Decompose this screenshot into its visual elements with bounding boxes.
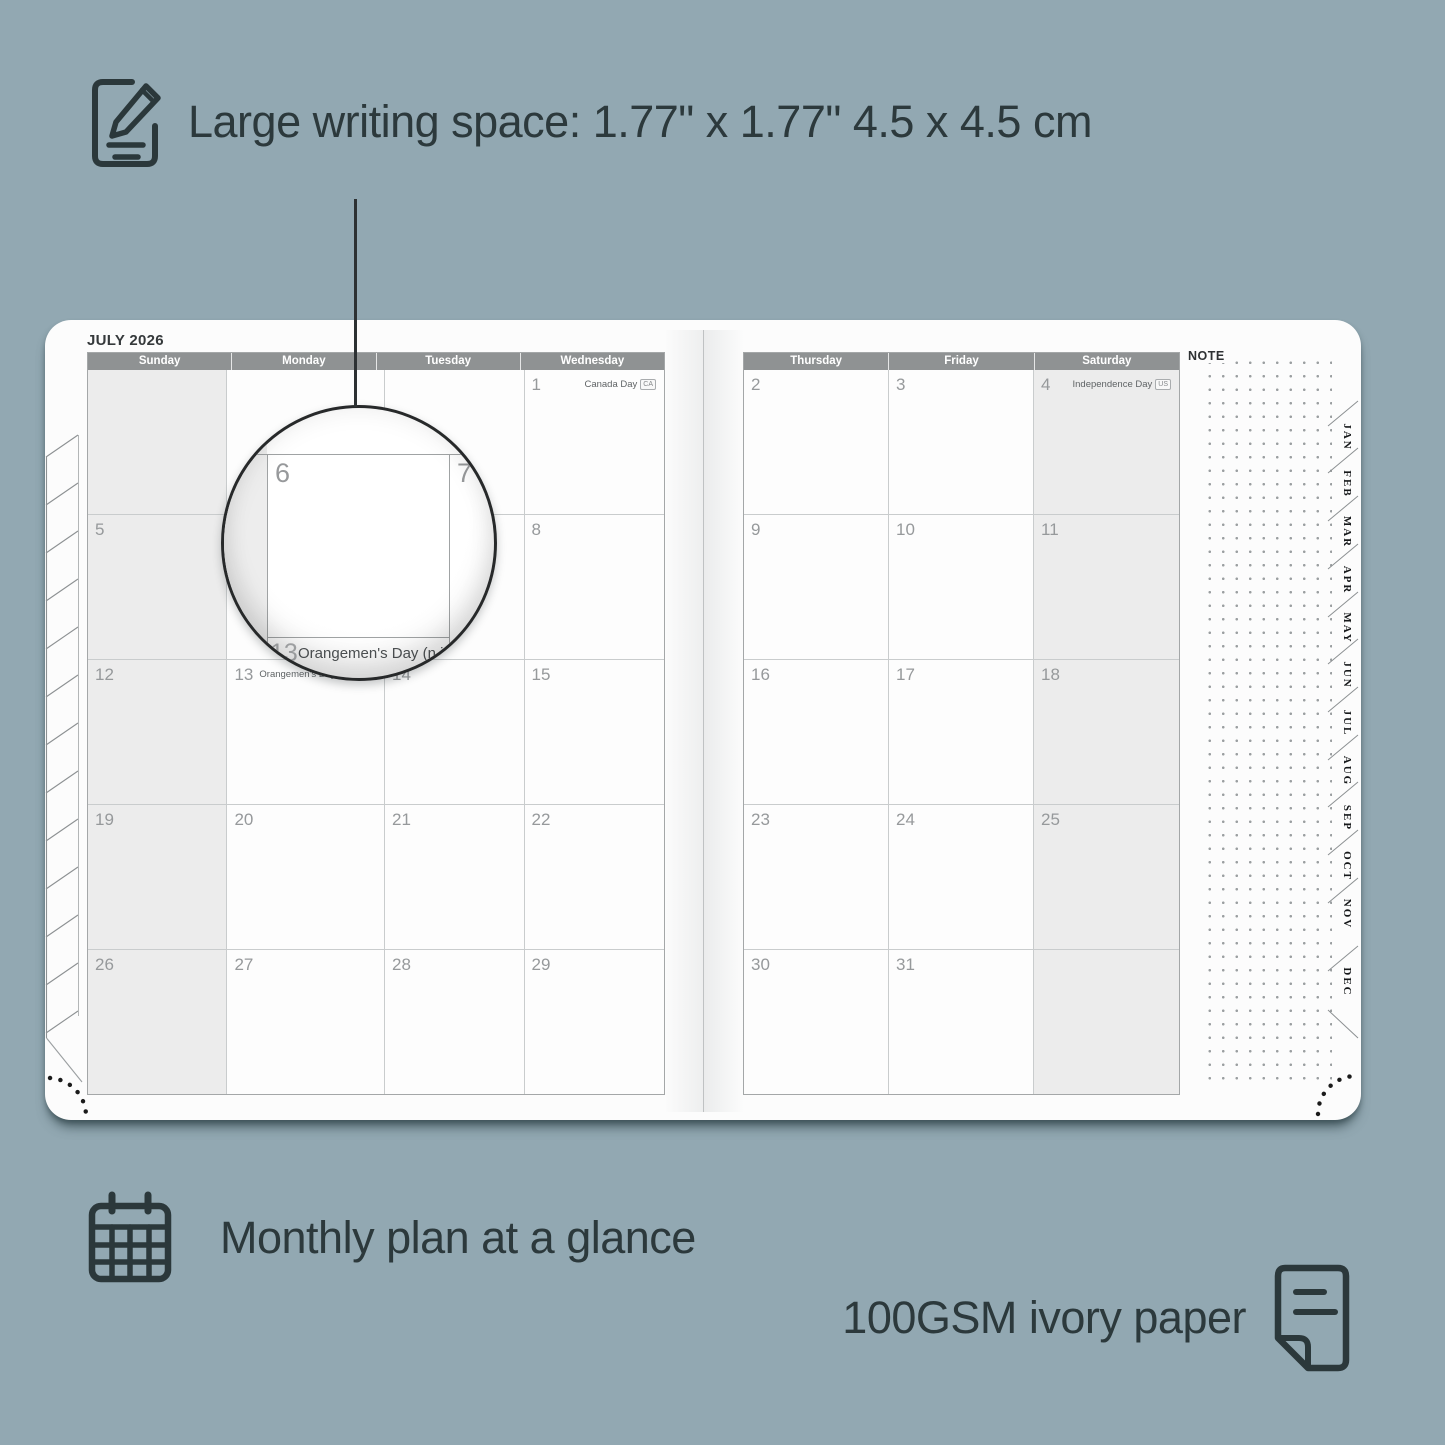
fold-shading-left bbox=[664, 330, 703, 1112]
monthly-plan-annotation: Monthly plan at a glance bbox=[84, 1190, 696, 1286]
month-title: JULY 2026 bbox=[87, 332, 164, 349]
date-number: 29 bbox=[532, 955, 551, 974]
calendar-cell: 28 bbox=[385, 950, 524, 1094]
date-number: 16 bbox=[751, 665, 770, 684]
calendar-cell: 26 bbox=[88, 950, 227, 1094]
callout-line bbox=[354, 199, 357, 407]
paper-caption: 100GSM ivory paper bbox=[842, 1292, 1246, 1344]
holiday-name: Canada Day bbox=[584, 379, 637, 390]
date-number: 12 bbox=[95, 665, 114, 684]
lens-grid-line bbox=[267, 454, 268, 650]
lens-shaded-column bbox=[224, 408, 267, 678]
calendar-cell: 22 bbox=[525, 805, 664, 950]
calendar-cell bbox=[88, 370, 227, 515]
monthly-plan-caption: Monthly plan at a glance bbox=[220, 1212, 696, 1264]
lens-holiday: Orangemen's Day (n.i.) UK bbox=[298, 645, 480, 662]
calendar-cell: 15 bbox=[525, 660, 664, 805]
calendar-cell: 14 bbox=[385, 660, 524, 805]
date-number: 10 bbox=[896, 520, 915, 539]
calendar-cell: 30 bbox=[744, 950, 889, 1094]
date-number: 3 bbox=[896, 375, 905, 394]
calendar-cell: 16 bbox=[744, 660, 889, 805]
calendar-cell: 29 bbox=[525, 950, 664, 1094]
holiday-name: Independence Day bbox=[1073, 379, 1153, 390]
note-label: NOTE bbox=[1188, 349, 1231, 363]
calendar-cell: 5 bbox=[88, 515, 227, 660]
calendar-cell: 21 bbox=[385, 805, 524, 950]
lens-holiday-name: Orangemen's Day (n.i.) bbox=[298, 645, 453, 662]
paper-icon bbox=[1272, 1264, 1352, 1372]
product-image: Large writing space: 1.77" x 1.77" 4.5 x… bbox=[0, 0, 1445, 1445]
lens-holiday-badge: UK bbox=[458, 646, 480, 661]
pencil-note-icon bbox=[88, 72, 166, 172]
right-day-header-row: ThursdayFridaySaturday bbox=[744, 353, 1179, 370]
calendar-cell: 4Independence DayUS bbox=[1034, 370, 1179, 515]
holiday: Canada DayCA bbox=[584, 379, 656, 390]
right-page-calendar: ThursdayFridaySaturday 234Independence D… bbox=[743, 352, 1180, 1095]
day-header: Thursday bbox=[744, 353, 889, 370]
date-number: 24 bbox=[896, 810, 915, 829]
calendar-cell: 10 bbox=[889, 515, 1034, 660]
calendar-cell: 20 bbox=[227, 805, 385, 950]
calendar-cell: 2 bbox=[744, 370, 889, 515]
left-day-header-row: SundayMondayTuesdayWednesday bbox=[88, 353, 664, 370]
fold-shading-right bbox=[704, 330, 744, 1112]
calendar-cell bbox=[1034, 950, 1179, 1094]
calendar-cell: 19 bbox=[88, 805, 227, 950]
calendar-cell: 24 bbox=[889, 805, 1034, 950]
date-number: 5 bbox=[95, 520, 104, 539]
writing-space-caption: Large writing space: 1.77" x 1.77" 4.5 x… bbox=[188, 96, 1092, 148]
day-header: Saturday bbox=[1035, 353, 1179, 370]
day-header: Wednesday bbox=[521, 353, 664, 370]
holiday: Independence DayUS bbox=[1073, 379, 1172, 390]
lens-grid-line bbox=[449, 454, 450, 650]
lens-day-13: 13 bbox=[270, 639, 298, 668]
date-number: 20 bbox=[234, 810, 253, 829]
note-dot-grid bbox=[1198, 353, 1332, 1089]
date-number: 1 bbox=[532, 375, 541, 394]
date-number: 25 bbox=[1041, 810, 1060, 829]
date-number: 19 bbox=[95, 810, 114, 829]
date-number: 22 bbox=[532, 810, 551, 829]
calendar-cell: 1Canada DayCA bbox=[525, 370, 664, 515]
calendar-cell: 31 bbox=[889, 950, 1034, 1094]
paper-annotation: 100GSM ivory paper bbox=[842, 1264, 1352, 1372]
calendar-cell: 27 bbox=[227, 950, 385, 1094]
lens-day-6: 6 bbox=[275, 458, 290, 489]
date-number: 26 bbox=[95, 955, 114, 974]
day-header: Friday bbox=[889, 353, 1034, 370]
date-number: 11 bbox=[1041, 520, 1059, 539]
date-number: 2 bbox=[751, 375, 760, 394]
calendar-cell: 25 bbox=[1034, 805, 1179, 950]
lens-day-7: 7 bbox=[457, 458, 472, 489]
calendar-cell: 8 bbox=[525, 515, 664, 660]
calendar-cell: 11 bbox=[1034, 515, 1179, 660]
calendar-cell: 18 bbox=[1034, 660, 1179, 805]
writing-space-annotation: Large writing space: 1.77" x 1.77" 4.5 x… bbox=[88, 72, 1092, 172]
date-number: 4 bbox=[1041, 375, 1050, 394]
calendar-cell: 13Orangemen's Day (n.i.)UK bbox=[227, 660, 385, 805]
calendar-cell: 17 bbox=[889, 660, 1034, 805]
date-number: 28 bbox=[392, 955, 411, 974]
calendar-cell: 12 bbox=[88, 660, 227, 805]
date-number: 30 bbox=[751, 955, 770, 974]
calendar-cell: 23 bbox=[744, 805, 889, 950]
calendar-cell: 3 bbox=[889, 370, 1034, 515]
holiday-badge: CA bbox=[640, 379, 656, 390]
date-number: 27 bbox=[234, 955, 253, 974]
holiday-badge: US bbox=[1155, 379, 1171, 390]
day-header: Sunday bbox=[88, 353, 232, 370]
date-number: 31 bbox=[896, 955, 915, 974]
lens-grid-line bbox=[224, 454, 494, 455]
calendar-icon bbox=[84, 1190, 176, 1286]
date-number: 15 bbox=[532, 665, 551, 684]
date-number: 18 bbox=[1041, 665, 1060, 684]
right-calendar-grid: 234Independence DayUS9101116171823242530… bbox=[744, 370, 1179, 1094]
magnifier-lens: 6 7 13 Orangemen's Day (n.i.) UK bbox=[221, 405, 497, 681]
date-number: 23 bbox=[751, 810, 770, 829]
date-number: 8 bbox=[532, 520, 541, 539]
date-number: 21 bbox=[392, 810, 411, 829]
date-number: 17 bbox=[896, 665, 915, 684]
date-number: 9 bbox=[751, 520, 760, 539]
day-header: Tuesday bbox=[377, 353, 521, 370]
calendar-cell: 9 bbox=[744, 515, 889, 660]
